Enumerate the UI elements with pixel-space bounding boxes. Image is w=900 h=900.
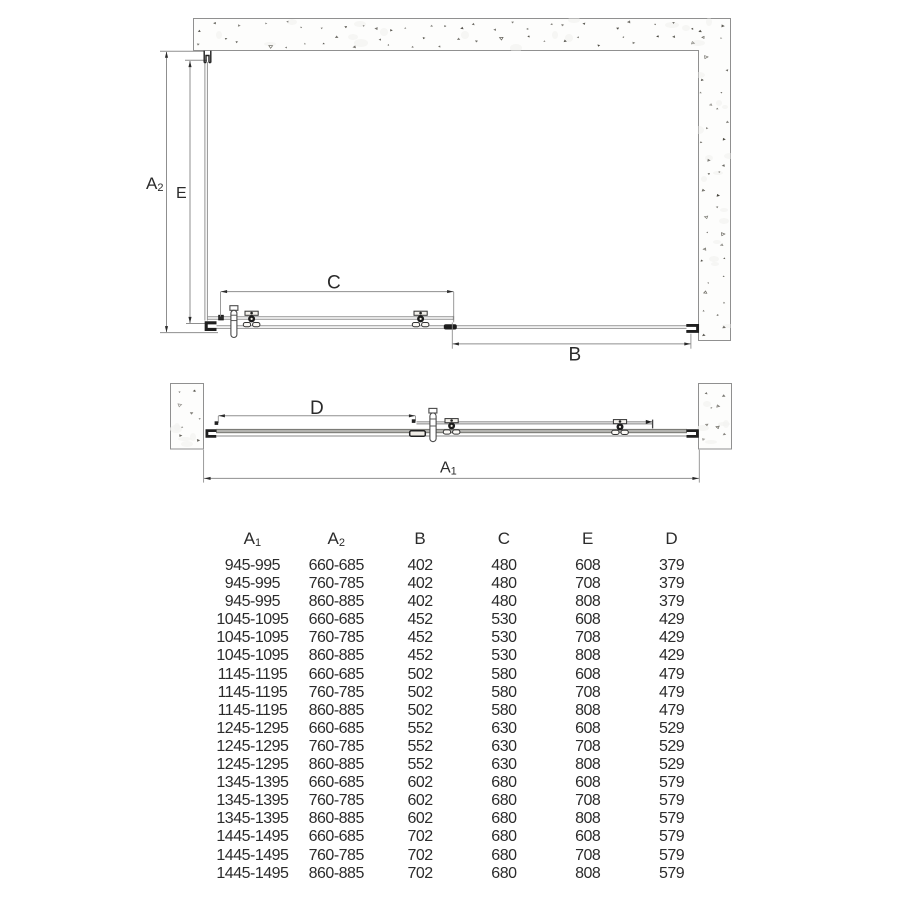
svg-text:E: E — [176, 185, 187, 202]
svg-text:B: B — [569, 345, 582, 366]
svg-text:D: D — [310, 398, 324, 419]
svg-text:C: C — [327, 273, 341, 294]
svg-text:A2: A2 — [146, 174, 163, 194]
svg-text:A1: A1 — [440, 460, 457, 478]
